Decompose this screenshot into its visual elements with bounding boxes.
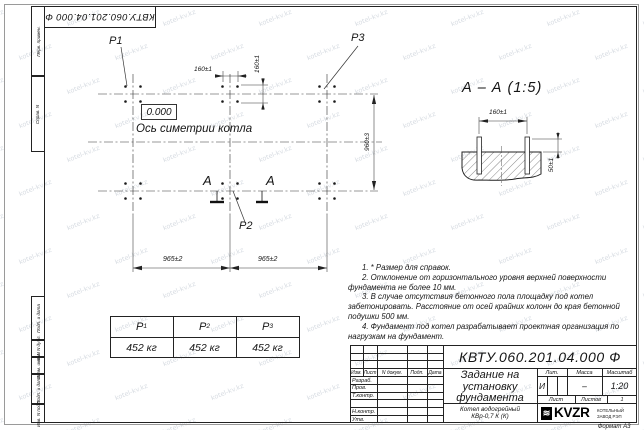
doc-number: КВТУ.060.201.04.000 Ф (443, 347, 637, 367)
doc-title-line1: Задание на (443, 369, 537, 381)
side-label: Справ. N (36, 104, 41, 123)
section-view-title: А – А (1:5) (462, 80, 542, 96)
dim-50-section: 50±1 (545, 152, 557, 178)
dim-160-top-horizontal: 160±1 (194, 66, 212, 73)
logo-text: KVZR (554, 405, 590, 420)
load-point-label-p2: P2 (239, 220, 252, 232)
dim-965-left: 965±2 (163, 256, 182, 263)
top-stamp-number: КВТУ.060.201.04.000 Ф (45, 11, 155, 22)
load-table-value-3: 452 кг (236, 341, 299, 354)
load-point-label-p3: P3 (351, 32, 364, 44)
load-table-header-2: P2 (173, 320, 236, 333)
mass-value: – (567, 379, 602, 392)
col-header-izm: Изм. (349, 370, 364, 377)
logo-wave-icon: ≋ (541, 407, 552, 420)
row-label-utv: Утв. (352, 417, 365, 423)
symmetry-axis-label: Ось симетрии котла (136, 123, 252, 135)
col-header-sign: Подп. (407, 370, 427, 377)
side-label: Перв. примен. (36, 26, 41, 57)
load-table-header-3: P3 (236, 320, 299, 333)
side-label: Подп. и дата (36, 304, 41, 333)
elevation-mark-box: 0.000 (141, 104, 177, 120)
dim-960-right: 960±3 (361, 123, 373, 161)
doc-title-line3: фундамента (443, 392, 537, 404)
row-label-prov: Пров. (352, 385, 367, 391)
dim-160-section: 160±1 (489, 109, 507, 116)
notes-block: 1. * Размер для справок. 2. Отклонение о… (348, 263, 630, 341)
load-table-value-2: 452 кг (173, 341, 236, 354)
col-header-doc: N докум. (377, 370, 407, 377)
scale-value: 1:20 (602, 379, 637, 392)
col-header-date: Дата (427, 370, 443, 377)
row-label-tkontr: Т.контр. (352, 393, 374, 399)
note-4: 4. Фундамент под котел разрабатывает про… (348, 322, 630, 342)
note-2: 2. Отклонение от горизонтального уровня … (348, 273, 630, 293)
sheets-value: 1 (607, 396, 637, 403)
load-table-value-1: 452 кг (110, 341, 173, 354)
elevation-mark: 0.000 (146, 107, 171, 118)
top-stamp: КВТУ.060.201.04.000 Ф (44, 6, 156, 28)
side-label: Инв. N подл. (36, 400, 41, 427)
section-letter-left: A (203, 173, 212, 188)
row-label-nkontr: Н.контр. (352, 409, 375, 415)
note-3: 3. В случае отсутствия бетонного пола пл… (348, 292, 630, 321)
load-table-header-1: P1 (110, 320, 173, 333)
note-1: 1. * Размер для справок. (348, 263, 630, 273)
col-header-list: Лист (363, 370, 377, 377)
sheet-label: Лист (537, 396, 575, 403)
section-letter-right: A (266, 173, 275, 188)
drawing-sheet: kotel-kv.kzkotel-kv.kzkotel-kv.kzkotel-k… (0, 0, 644, 430)
sheets-label: Листов (575, 396, 607, 403)
logo-subtext-1: КОТЕЛЬНЫЙ (597, 408, 624, 413)
lit-value: И (537, 379, 547, 392)
side-label: Подп. и дата (36, 375, 41, 404)
row-label-razrab: Разраб. (352, 378, 372, 384)
product-name-line2: КВр-0,7 К (К) (443, 413, 537, 421)
scale-label: Масштаб (602, 369, 637, 376)
logo-subtext-2: ЗАВОД РЭП (597, 414, 622, 419)
lit-label: Лит. (537, 369, 567, 376)
dim-965-right: 965±2 (258, 256, 277, 263)
format-label: Формат А3 (590, 424, 638, 430)
mass-label: Масса (567, 369, 602, 376)
dim-160-top-vertical: 160±1 (251, 51, 263, 77)
load-point-label-p1: P1 (109, 35, 122, 47)
